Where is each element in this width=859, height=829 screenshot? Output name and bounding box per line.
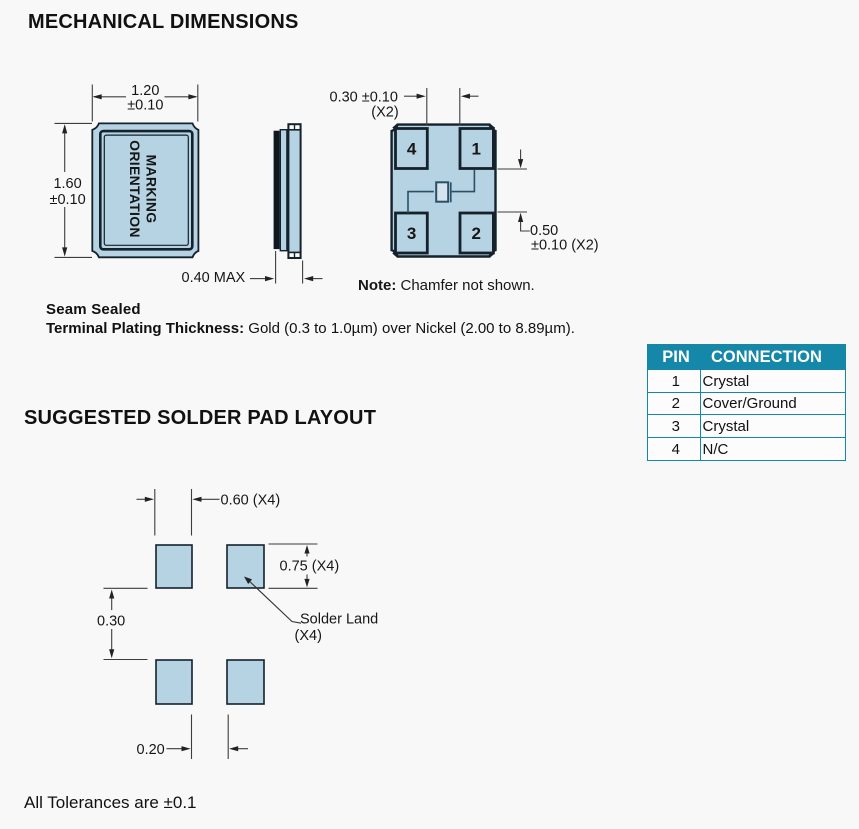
svg-text:0.40 MAX: 0.40 MAX <box>182 270 246 286</box>
svg-text:ORIENTATION: ORIENTATION <box>127 140 143 238</box>
svg-text:0.20: 0.20 <box>137 742 165 758</box>
svg-text:0.60 (X4): 0.60 (X4) <box>221 492 281 508</box>
svg-text:0.50: 0.50 <box>530 223 558 239</box>
svg-text:0.30: 0.30 <box>97 613 125 629</box>
svg-text:1.60: 1.60 <box>53 176 81 192</box>
svg-text:(X2): (X2) <box>371 105 398 121</box>
svg-text:2: 2 <box>471 224 480 243</box>
svg-text:3: 3 <box>407 224 416 243</box>
svg-text:MARKING: MARKING <box>144 155 160 224</box>
svg-text:Solder Land: Solder Land <box>300 612 378 628</box>
svg-text:0.30 ±0.10: 0.30 ±0.10 <box>330 89 398 105</box>
svg-text:4: 4 <box>407 140 417 159</box>
svg-text:±0.10 (X2): ±0.10 (X2) <box>531 238 599 254</box>
svg-text:(X4): (X4) <box>295 628 322 644</box>
svg-text:±0.10: ±0.10 <box>127 98 163 114</box>
svg-text:±0.10: ±0.10 <box>50 192 86 208</box>
svg-text:0.75 (X4): 0.75 (X4) <box>280 558 340 574</box>
svg-text:Note: Chamfer not shown.: Note: Chamfer not shown. <box>358 277 535 294</box>
svg-text:1: 1 <box>471 140 480 159</box>
